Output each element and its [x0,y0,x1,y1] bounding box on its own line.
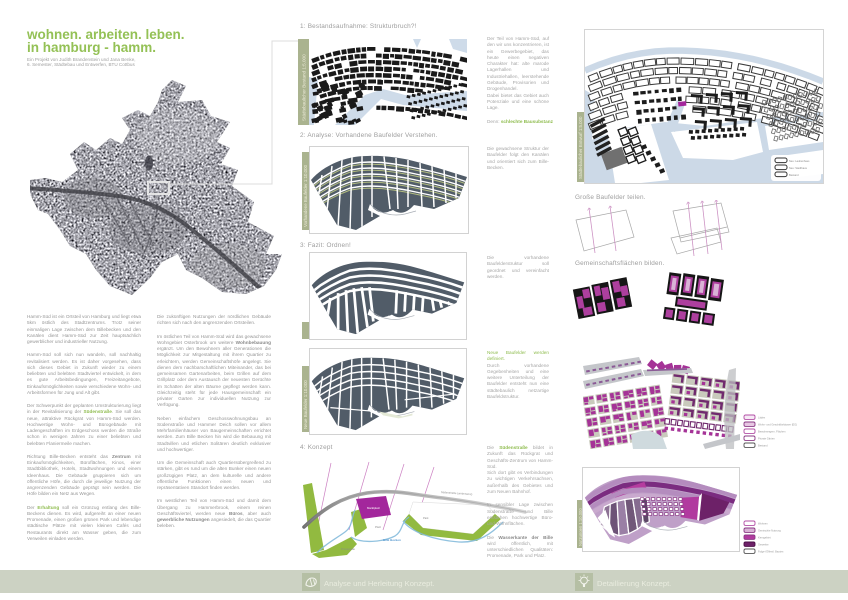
svg-text:Neu: Laubenhaus: Neu: Laubenhaus [789,159,810,163]
svg-text:Städtebaulicher Bestand 1:5.00: Städtebaulicher Bestand 1:5.000 [302,54,307,121]
svg-text:Bewohnergem. Flächen: Bewohnergem. Flächen [758,430,786,434]
svg-text:Gewerbe: Gewerbe [758,543,769,547]
svg-text:Promenade: Promenade [341,547,355,551]
svg-text:Kerngebiet: Kerngebiet [758,536,771,540]
svg-text:Bestand: Bestand [789,173,799,177]
svg-text:Südenstraße (umbenannt): Südenstraße (umbenannt) [441,490,473,496]
svg-text:Bille Becken: Bille Becken [383,538,401,542]
svg-text:Folge-/Öffentl. Bauten: Folge-/Öffentl. Bauten [758,550,784,554]
svg-text:Vorhandene Baufelder 1:10.000: Vorhandene Baufelder 1:10.000 [303,164,308,227]
svg-text:Park: Park [423,516,429,520]
svg-text:Läden: Läden [758,416,766,420]
svg-text:Private Gärten: Private Gärten [758,437,775,441]
svg-text:Bestand: Bestand [758,444,768,448]
svg-text:Gemischte Nutzung: Gemischte Nutzung [758,529,781,533]
svg-text:Wohn- und Geschäftshäuser (EG): Wohn- und Geschäftshäuser (EG) [758,423,797,427]
svg-text:Neu: Stadthaus: Neu: Stadthaus [789,166,808,170]
svg-text:Städtebaulicher Entwurf 1:5.00: Städtebaulicher Entwurf 1:5.000 [578,116,583,179]
svg-text:Wohnen: Wohnen [758,522,768,526]
svg-text:Platz: Platz [375,525,382,529]
svg-text:Neue Baufelder 1:10.000: Neue Baufelder 1:10.000 [303,380,308,429]
svg-text:Marktplatz: Marktplatz [367,506,381,510]
